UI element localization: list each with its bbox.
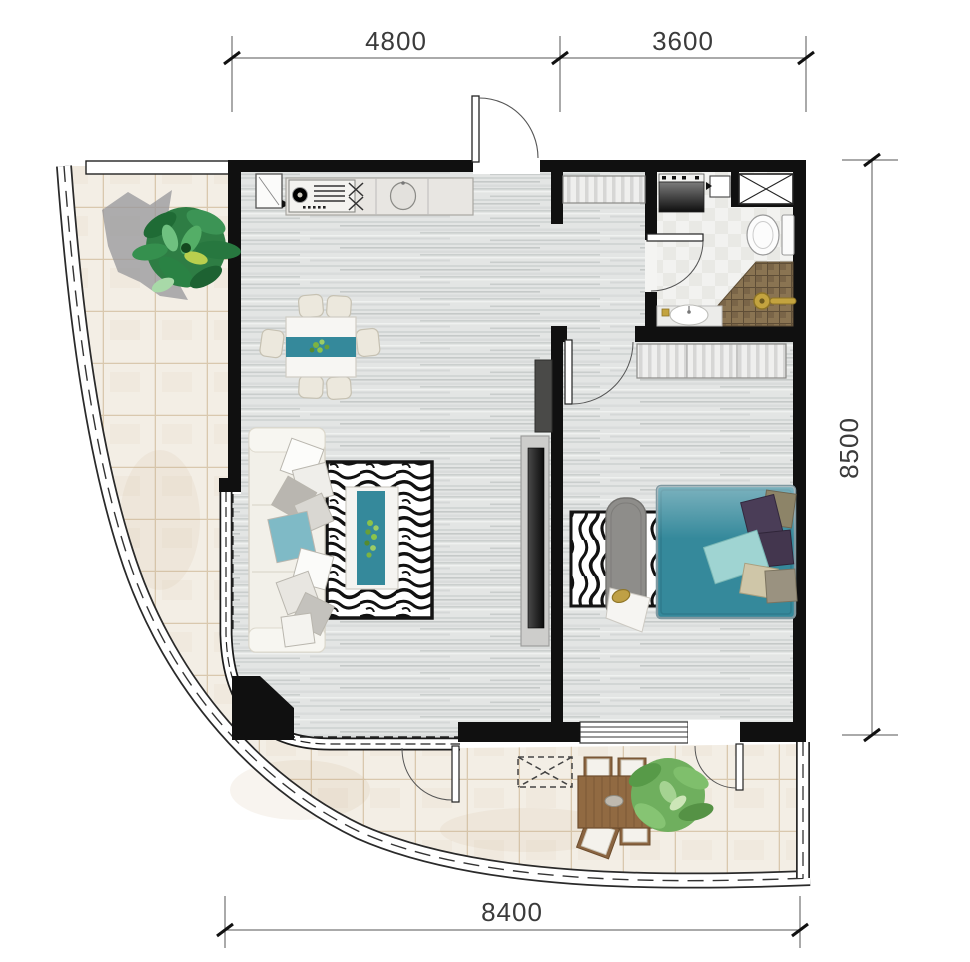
passage-floor	[551, 224, 563, 328]
floor-plan-drawing: 4800 3600 8500 8400	[0, 0, 970, 962]
bedroom-window	[580, 722, 688, 743]
dim-label-right: 8500	[834, 417, 864, 479]
terrace-parapet	[86, 161, 230, 174]
entry-door	[472, 96, 540, 174]
vanity-sink	[657, 305, 722, 326]
vent-shaft-icon	[739, 174, 793, 204]
double-bed	[657, 486, 797, 618]
washing-machine	[659, 174, 704, 212]
tv-console	[521, 436, 549, 646]
tv-icon	[528, 448, 544, 628]
bathroom-cabinet	[706, 176, 730, 197]
entry-closet	[563, 176, 645, 203]
gas-stove-icon	[289, 180, 363, 212]
coffee-table	[346, 487, 398, 589]
toilet-icon	[747, 215, 794, 255]
dim-label-top-left: 4800	[365, 26, 427, 56]
dim-label-top-right: 3600	[652, 26, 714, 56]
dim-label-bottom: 8400	[481, 897, 543, 927]
media-cabinet	[535, 360, 552, 432]
bedroom-doorway-floor	[567, 326, 635, 342]
coffee-table-runner	[357, 491, 385, 585]
sofa	[249, 428, 334, 652]
floor-plan: 4800 3600 8500 8400	[0, 0, 970, 962]
wardrobe	[637, 344, 786, 378]
bedside-bench	[606, 498, 650, 632]
